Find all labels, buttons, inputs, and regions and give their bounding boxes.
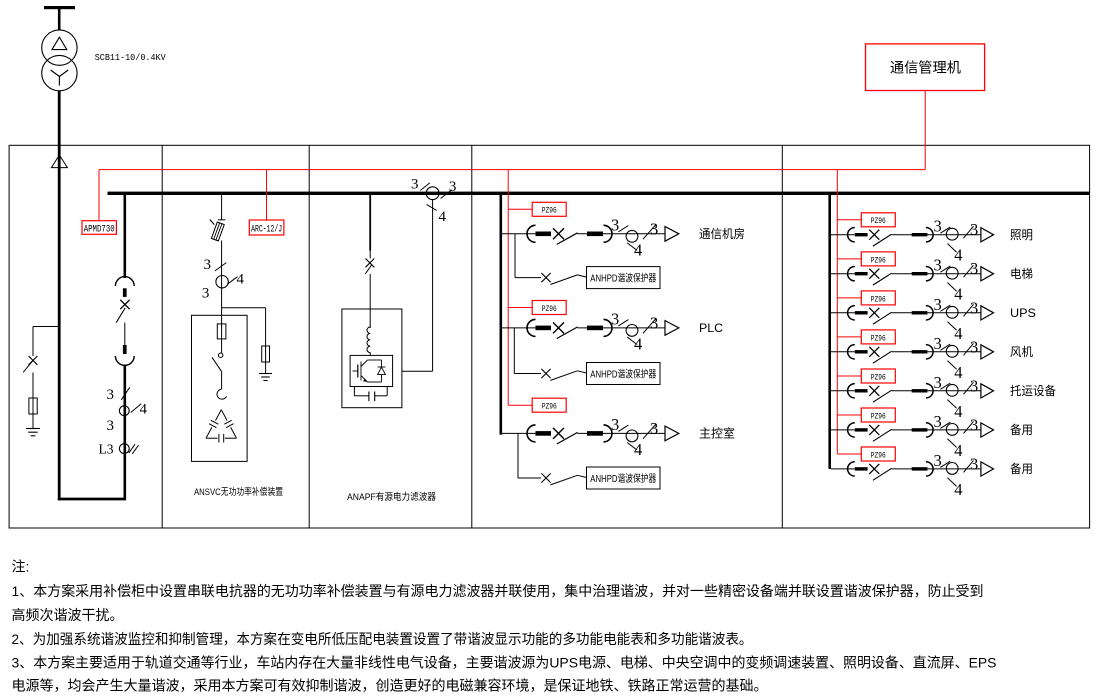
svg-text:注:: 注: xyxy=(12,559,30,575)
svg-text:高频次谐波干扰。: 高频次谐波干扰。 xyxy=(12,607,124,623)
svg-text:PZ96: PZ96 xyxy=(542,304,557,314)
svg-text:ANHPD谐波保护器: ANHPD谐波保护器 xyxy=(590,367,656,380)
svg-text:PZ96: PZ96 xyxy=(871,450,886,460)
svg-text:3: 3 xyxy=(449,179,457,195)
svg-text:PZ96: PZ96 xyxy=(871,333,886,343)
svg-text:PZ96: PZ96 xyxy=(871,372,886,382)
svg-text:3: 3 xyxy=(202,286,210,302)
svg-text:4: 4 xyxy=(954,363,962,382)
svg-text:4: 4 xyxy=(954,285,962,304)
svg-text:4: 4 xyxy=(634,334,642,353)
svg-text:托运设备: 托运设备 xyxy=(1010,384,1056,398)
svg-text:电梯: 电梯 xyxy=(1010,267,1033,281)
svg-text:PZ96: PZ96 xyxy=(542,206,557,216)
svg-text:ANHPD谐波保护器: ANHPD谐波保护器 xyxy=(590,472,656,485)
svg-text:PZ96: PZ96 xyxy=(871,411,886,421)
svg-text:PZ96: PZ96 xyxy=(871,294,886,304)
svg-text:SCB11-10/0.4KV: SCB11-10/0.4KV xyxy=(95,52,166,63)
svg-text:4: 4 xyxy=(237,272,245,288)
svg-text:备用: 备用 xyxy=(1010,423,1033,437)
svg-text:3: 3 xyxy=(650,219,658,238)
svg-text:UPS: UPS xyxy=(1010,306,1036,320)
svg-text:主控室: 主控室 xyxy=(699,426,735,441)
svg-text:4: 4 xyxy=(954,480,962,499)
svg-text:通信管理机: 通信管理机 xyxy=(890,60,961,76)
svg-text:ANSVC无功功率补偿装置: ANSVC无功功率补偿装置 xyxy=(194,486,283,498)
svg-text:3: 3 xyxy=(970,376,978,395)
svg-text:3: 3 xyxy=(650,419,658,438)
svg-text:ANHPD谐波保护器: ANHPD谐波保护器 xyxy=(590,271,656,284)
svg-text:4: 4 xyxy=(954,324,962,343)
svg-text:ANAPF有源电力滤波器: ANAPF有源电力滤波器 xyxy=(347,491,436,503)
svg-text:4: 4 xyxy=(634,240,642,259)
svg-text:4: 4 xyxy=(140,402,148,418)
svg-text:通信机房: 通信机房 xyxy=(699,226,745,241)
svg-text:3: 3 xyxy=(611,310,619,329)
svg-text:4: 4 xyxy=(954,402,962,421)
svg-text:3: 3 xyxy=(970,454,978,473)
svg-text:3: 3 xyxy=(107,387,115,403)
svg-text:PZ96: PZ96 xyxy=(871,255,886,265)
svg-text:3: 3 xyxy=(107,418,115,434)
svg-text:3: 3 xyxy=(970,259,978,278)
svg-text:L3: L3 xyxy=(99,442,114,457)
svg-text:风机: 风机 xyxy=(1010,345,1033,359)
svg-text:2、为加强系统谐波监控和抑制管理，本方案在变电所低压配电装置: 2、为加强系统谐波监控和抑制管理，本方案在变电所低压配电装置设置了带谐波显示功能… xyxy=(12,631,753,647)
svg-text:照明: 照明 xyxy=(1010,228,1033,242)
svg-text:APMD730: APMD730 xyxy=(84,223,115,235)
svg-text:PLC: PLC xyxy=(699,321,723,335)
svg-text:3: 3 xyxy=(970,298,978,317)
svg-text:4: 4 xyxy=(439,209,447,225)
svg-text:1、本方案采用补偿柜中设置串联电抗器的无功功率补偿装置与有源: 1、本方案采用补偿柜中设置串联电抗器的无功功率补偿装置与有源电力滤波器并联使用，… xyxy=(12,583,984,599)
svg-text:3: 3 xyxy=(611,415,619,434)
svg-text:3: 3 xyxy=(650,313,658,332)
svg-text:3: 3 xyxy=(611,216,619,235)
svg-text:3: 3 xyxy=(204,257,212,273)
svg-text:PZ96: PZ96 xyxy=(542,402,557,412)
svg-text:电源等，均会产生大量谐波，采用本方案可有效抑制谐波，创造更好: 电源等，均会产生大量谐波，采用本方案可有效抑制谐波，创造更好的电磁兼容环境，是保… xyxy=(12,678,768,694)
svg-text:3: 3 xyxy=(970,220,978,239)
svg-text:PZ96: PZ96 xyxy=(871,216,886,226)
svg-text:备用: 备用 xyxy=(1010,462,1033,476)
svg-text:3、本方案主要适用于轨道交通等行业，车站内存在大量非线性电气: 3、本方案主要适用于轨道交通等行业，车站内存在大量非线性电气设备，主要谐波源为U… xyxy=(12,655,997,671)
svg-text:4: 4 xyxy=(954,441,962,460)
svg-text:ARC-12/J: ARC-12/J xyxy=(251,224,282,236)
svg-text:3: 3 xyxy=(970,415,978,434)
svg-text:4: 4 xyxy=(634,440,642,459)
svg-text:3: 3 xyxy=(411,177,419,193)
svg-text:3: 3 xyxy=(970,337,978,356)
svg-text:4: 4 xyxy=(954,246,962,265)
